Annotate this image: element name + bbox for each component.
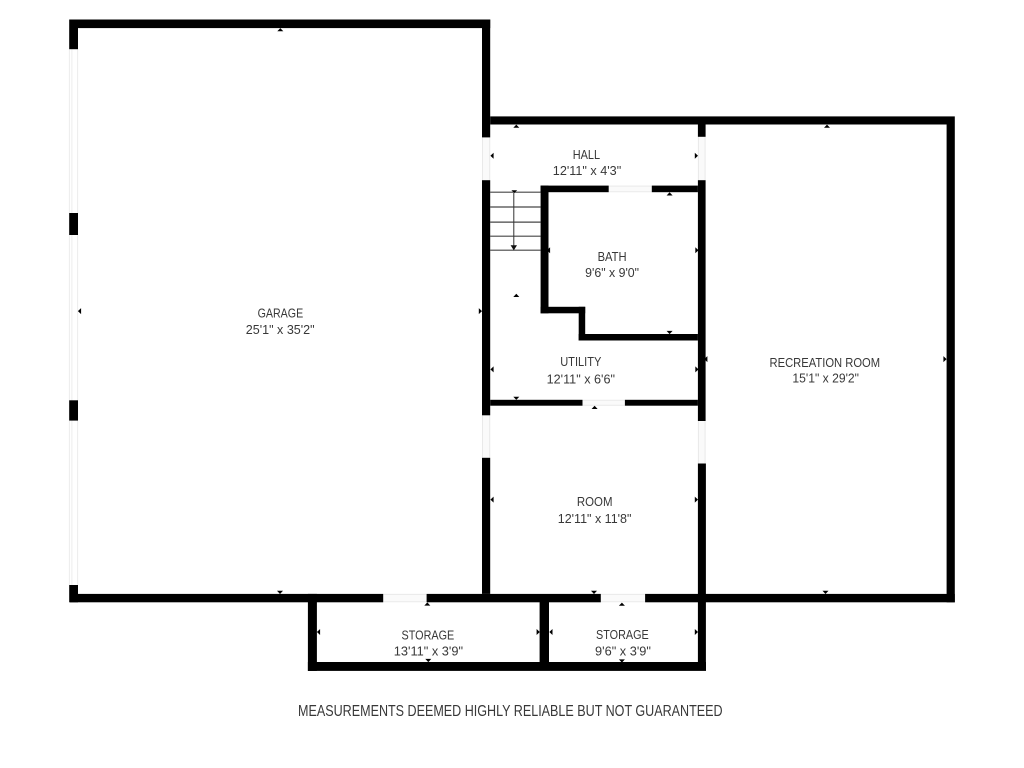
svg-text:12'11" x 4'3": 12'11" x 4'3" bbox=[553, 164, 621, 178]
svg-text:STORAGE: STORAGE bbox=[596, 628, 649, 642]
svg-text:HALL: HALL bbox=[573, 148, 600, 162]
svg-text:9'6" x 9'0": 9'6" x 9'0" bbox=[585, 266, 639, 280]
svg-text:12'11" x 6'6": 12'11" x 6'6" bbox=[547, 373, 615, 387]
svg-text:9'6" x 3'9": 9'6" x 3'9" bbox=[595, 644, 651, 658]
svg-text:12'11" x 11'8": 12'11" x 11'8" bbox=[558, 512, 632, 526]
svg-text:GARAGE: GARAGE bbox=[258, 307, 304, 321]
svg-text:25'1" x 35'2": 25'1" x 35'2" bbox=[246, 323, 315, 337]
svg-text:ROOM: ROOM bbox=[577, 495, 613, 509]
svg-text:13'11" x 3'9": 13'11" x 3'9" bbox=[394, 644, 463, 658]
svg-text:RECREATION ROOM: RECREATION ROOM bbox=[770, 356, 881, 370]
svg-text:15'1" x 29'2": 15'1" x 29'2" bbox=[792, 372, 859, 386]
svg-text:BATH: BATH bbox=[598, 250, 627, 264]
svg-text:STORAGE: STORAGE bbox=[402, 628, 455, 642]
svg-text:MEASUREMENTS DEEMED HIGHLY REL: MEASUREMENTS DEEMED HIGHLY RELIABLE BUT … bbox=[298, 703, 723, 720]
svg-text:UTILITY: UTILITY bbox=[560, 355, 602, 369]
